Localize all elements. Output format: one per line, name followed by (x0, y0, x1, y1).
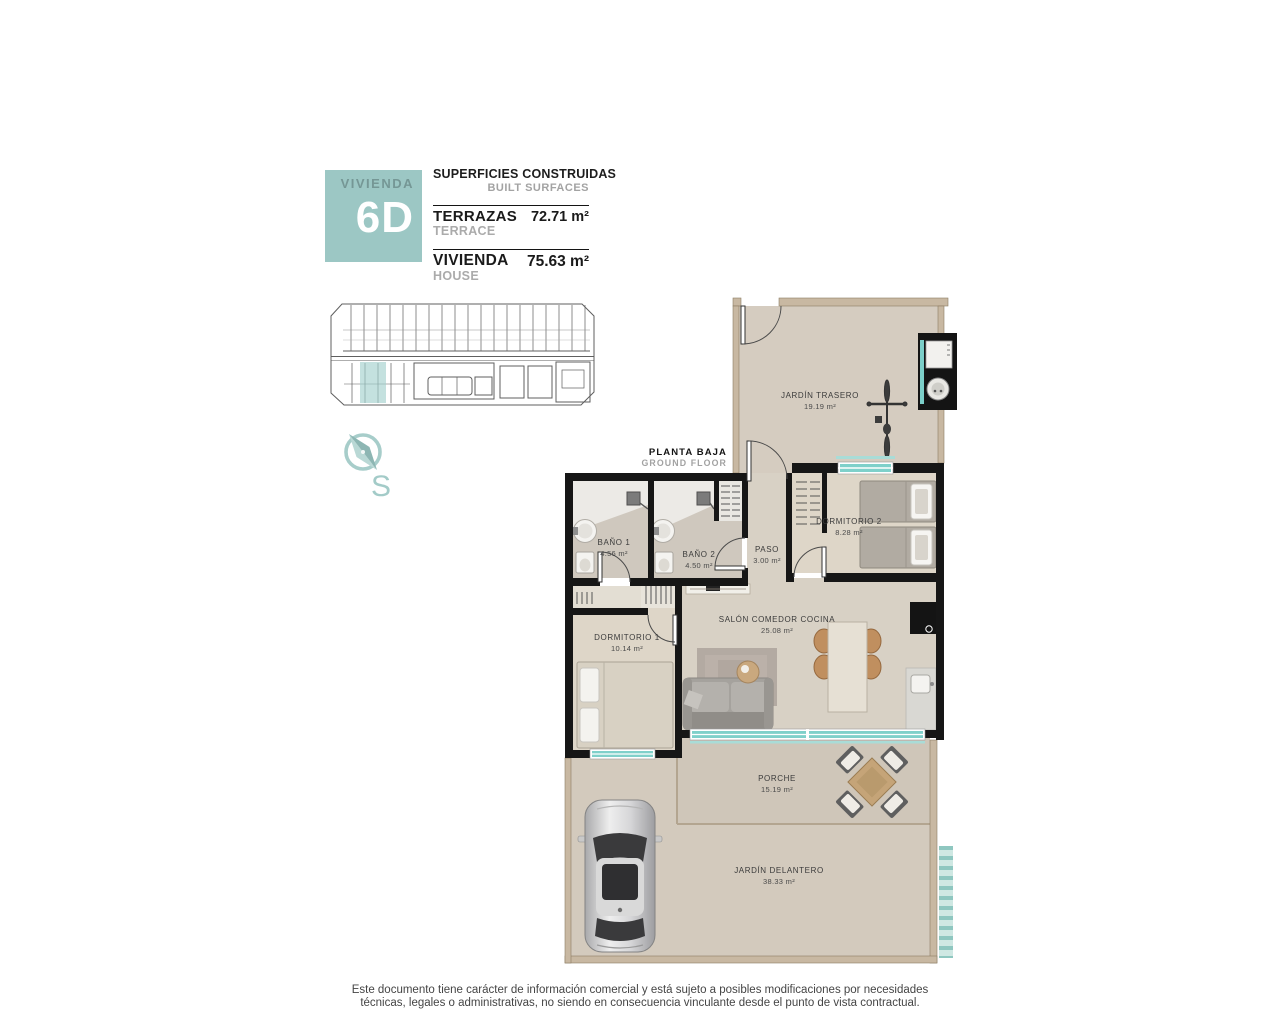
disclaimer-line1: Este documento tiene carácter de informa… (0, 984, 1280, 997)
disclaimer-line2: técnicas, legales o administrativas, no … (0, 997, 1280, 1010)
room-label-bedroom1: DORMITORIO 1 (594, 633, 660, 642)
coffee-table (737, 661, 759, 683)
room-label-bedroom2: DORMITORIO 2 (816, 517, 882, 526)
room-area-front-garden: 38.33 m² (763, 877, 795, 886)
room-label-front-garden: JARDÍN DELANTERO (734, 866, 824, 875)
laundry-alcove (918, 333, 957, 410)
room-area-bath1: 4.56 m² (600, 549, 628, 558)
room-label-back-garden: JARDÍN TRASERO (781, 391, 859, 400)
room-label-hall: PASO (755, 545, 779, 554)
room-label-porch: PORCHE (758, 774, 796, 783)
room-label-bath2: BAÑO 2 (683, 550, 716, 559)
room-label-bath1: BAÑO 1 (598, 538, 631, 547)
floor-label-en: GROUND FLOOR (641, 458, 727, 468)
tv-icon (706, 586, 720, 591)
compass-icon: S (346, 434, 391, 503)
room-area-bedroom2: 8.28 m² (835, 528, 863, 537)
site-map-icon (331, 304, 594, 405)
room-label-living: SALÓN COMEDOR COCINA (719, 615, 836, 624)
plan-sheet: VIVIENDA 6D SUPERFICIES CONSTRUIDAS BUIL… (0, 0, 1280, 1024)
highlighted-unit-marker (360, 362, 386, 403)
room-area-hall: 3.00 m² (753, 556, 781, 565)
room-area-bedroom1: 10.14 m² (611, 644, 643, 653)
floor-plan-svg: S (0, 0, 1280, 1024)
sofa (683, 678, 773, 730)
car-icon (578, 800, 662, 952)
room-area-bath2: 4.50 m² (685, 561, 713, 570)
room-area-back-garden: 19.19 m² (804, 402, 836, 411)
disclaimer: Este documento tiene carácter de informa… (0, 984, 1280, 1010)
compass-south-letter: S (371, 470, 391, 503)
room-area-living: 25.08 m² (761, 626, 793, 635)
hedge (939, 846, 953, 958)
room-area-porch: 15.19 m² (761, 785, 793, 794)
sink-icon (911, 675, 930, 693)
floor-label: PLANTA BAJA (649, 447, 727, 458)
